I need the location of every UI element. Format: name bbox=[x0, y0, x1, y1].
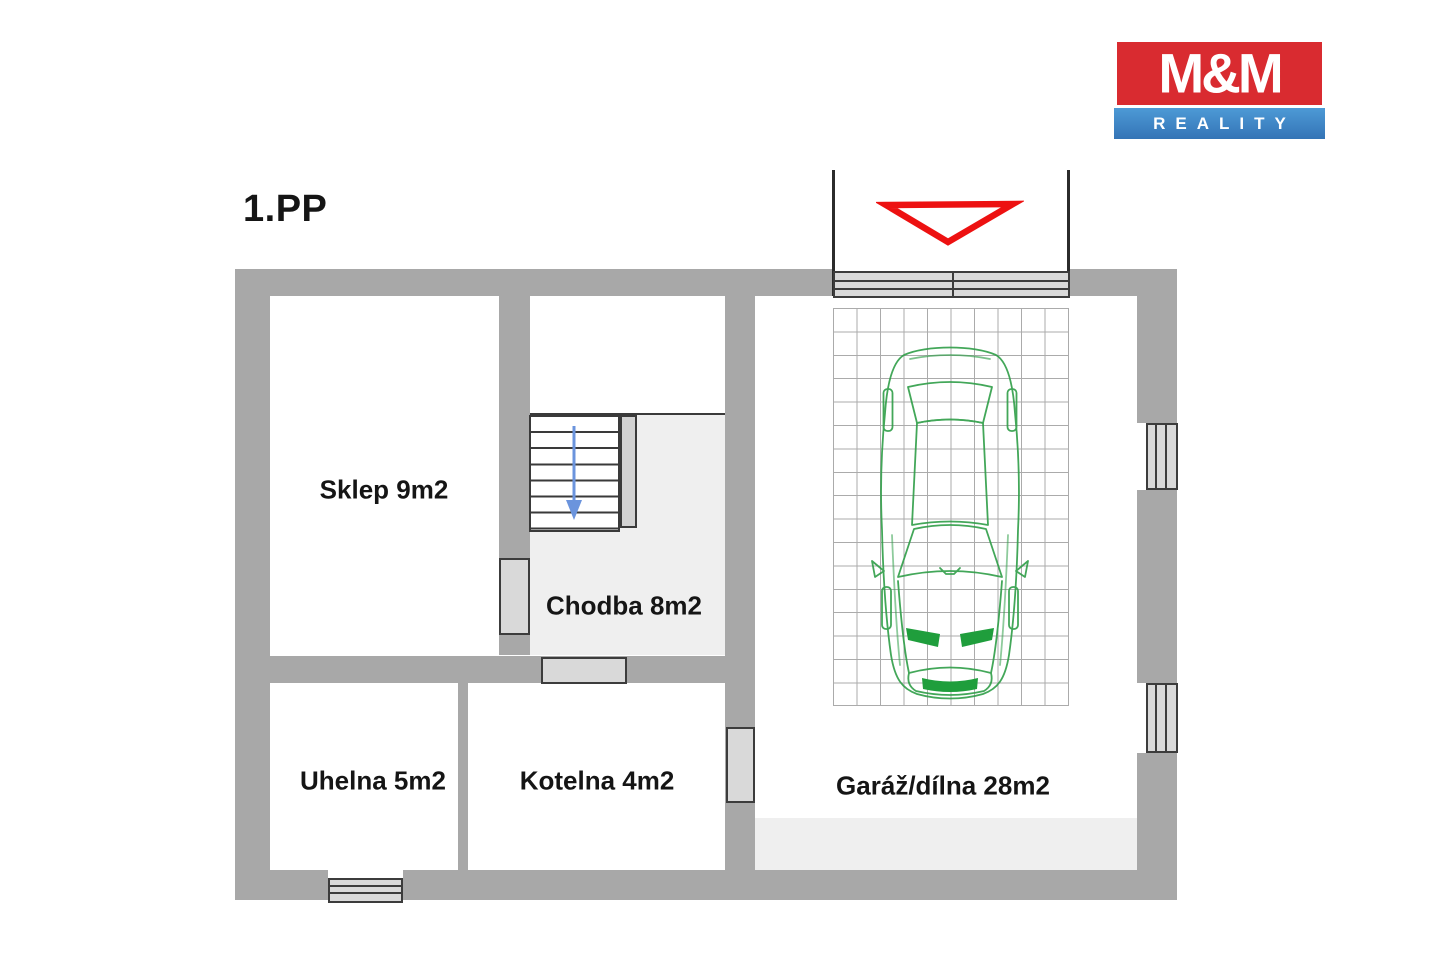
room-label-uhelna: Uhelna 5m2 bbox=[300, 766, 446, 797]
mm-reality-logo: M&M REALITY bbox=[1114, 40, 1326, 140]
garage-door-symbol bbox=[833, 271, 1070, 298]
entrance-arrow-icon bbox=[876, 196, 1024, 252]
logo-tagline-box: REALITY bbox=[1114, 108, 1325, 139]
floor-plan-page: 1.PP M&M REALITY bbox=[0, 0, 1440, 961]
garage-floor-strip bbox=[755, 818, 1137, 870]
room-label-garaz-dilna: Garáž/dílna 28m2 bbox=[836, 771, 1050, 802]
room-label-kotelna: Kotelna 4m2 bbox=[520, 766, 675, 797]
wall-middle-divider bbox=[270, 656, 725, 683]
logo-tagline-text: REALITY bbox=[1143, 115, 1296, 132]
logo-brand-box: M&M bbox=[1117, 42, 1322, 105]
door-garage-side bbox=[726, 727, 755, 803]
room-label-chodba: Chodba 8m2 bbox=[546, 591, 702, 622]
wall-left bbox=[235, 269, 270, 900]
window-right-lower bbox=[1146, 683, 1178, 753]
wall-top-left bbox=[235, 269, 833, 296]
door-chodba-kotelna bbox=[541, 657, 627, 684]
wall-bottom-main bbox=[403, 870, 1177, 900]
door-sklep bbox=[499, 558, 530, 635]
floor-title: 1.PP bbox=[243, 188, 327, 231]
wall-right-upper bbox=[1137, 269, 1177, 423]
window-right-upper bbox=[1146, 423, 1178, 490]
room-label-sklep: Sklep 9m2 bbox=[320, 475, 449, 506]
logo-brand-text: M&M bbox=[1158, 45, 1280, 101]
staircase-newel-wall bbox=[620, 415, 637, 528]
wall-right-lower bbox=[1137, 753, 1177, 900]
wall-uhelna-kotelna bbox=[458, 683, 468, 870]
wall-bottom-left bbox=[235, 870, 328, 900]
window-bottom-uhelna bbox=[328, 878, 403, 903]
car-icon bbox=[870, 325, 1030, 705]
wall-right-middle bbox=[1137, 490, 1177, 683]
stairs-down-arrow-icon bbox=[560, 420, 588, 525]
